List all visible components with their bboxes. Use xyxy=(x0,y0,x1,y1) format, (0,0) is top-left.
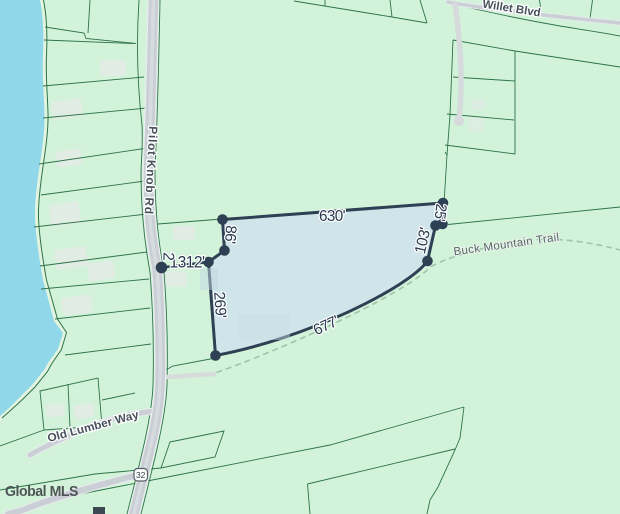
svg-text:269': 269' xyxy=(210,291,229,319)
svg-text:86': 86' xyxy=(221,225,239,245)
svg-text:630': 630' xyxy=(319,208,346,225)
svg-text:25': 25' xyxy=(430,203,449,223)
svg-text:32: 32 xyxy=(136,470,146,480)
svg-text:2: 2 xyxy=(159,252,176,261)
svg-text:Global MLS: Global MLS xyxy=(5,483,78,500)
